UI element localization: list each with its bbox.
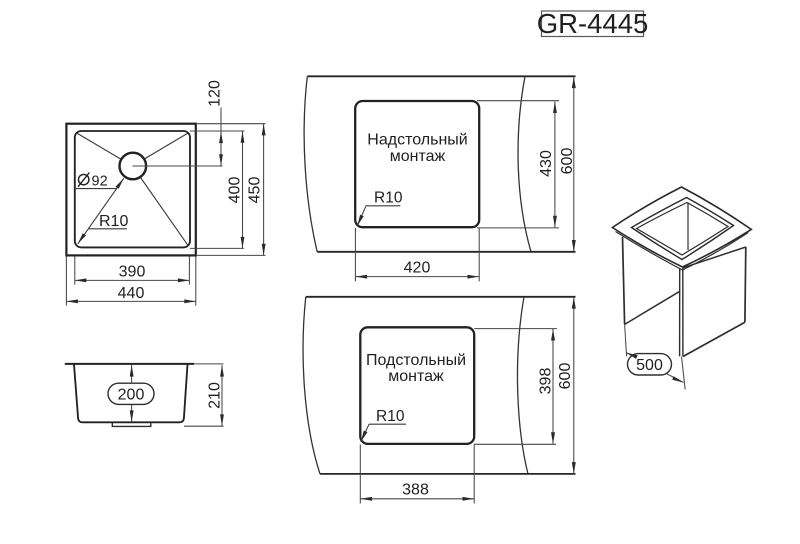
svg-text:92: 92: [92, 174, 108, 190]
svg-text:398: 398: [538, 368, 555, 395]
svg-text:388: 388: [402, 482, 429, 499]
svg-text:600: 600: [559, 148, 576, 175]
svg-text:R10: R10: [374, 190, 403, 207]
svg-text:440: 440: [118, 285, 145, 302]
svg-text:Надстольный: Надстольный: [367, 132, 467, 149]
svg-text:210: 210: [207, 382, 224, 409]
svg-text:GR-4445: GR-4445: [537, 8, 649, 39]
svg-text:Подстольный: Подстольный: [366, 352, 466, 369]
svg-text:монтаж: монтаж: [390, 148, 446, 165]
svg-text:450: 450: [247, 177, 264, 204]
svg-text:430: 430: [538, 150, 555, 177]
svg-text:R10: R10: [99, 213, 128, 230]
svg-text:монтаж: монтаж: [388, 368, 444, 385]
svg-text:400: 400: [227, 177, 244, 204]
svg-text:420: 420: [404, 260, 431, 277]
svg-text:390: 390: [119, 264, 146, 281]
svg-text:600: 600: [557, 363, 574, 390]
svg-text:200: 200: [118, 386, 145, 403]
svg-text:120: 120: [207, 80, 224, 107]
svg-text:500: 500: [636, 357, 663, 374]
svg-text:R10: R10: [376, 408, 405, 425]
